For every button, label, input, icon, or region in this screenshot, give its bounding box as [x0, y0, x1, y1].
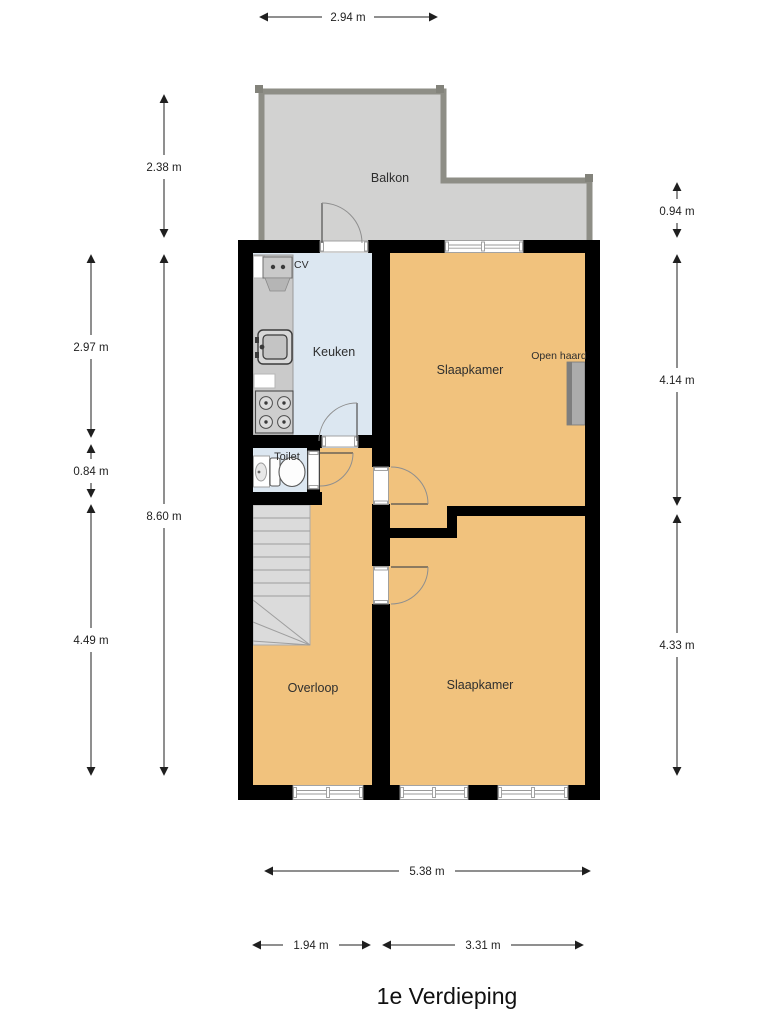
svg-text:4.33 m: 4.33 m — [659, 640, 694, 652]
dim-balcony-right-height: 0.94 m — [659, 183, 694, 237]
window-bottom-bedroom-left — [400, 786, 468, 800]
svg-text:4.49 m: 4.49 m — [73, 635, 108, 647]
svg-text:2.38 m: 2.38 m — [146, 162, 181, 174]
cv-label: CV — [294, 259, 309, 271]
dim-balcony-height: 2.38 m — [146, 95, 181, 237]
kitchen-sink — [255, 330, 292, 364]
dim-toilet-height: 0.84 m — [73, 445, 108, 497]
floor-title: 1e Verdieping — [377, 983, 518, 1009]
svg-text:3.31 m: 3.31 m — [465, 940, 500, 952]
toilet-label: Toilet — [274, 451, 300, 463]
svg-text:5.38 m: 5.38 m — [409, 866, 444, 878]
slaapkamer-2-label: Slaapkamer — [447, 678, 514, 692]
dim-bedroom1-height: 4.14 m — [659, 255, 694, 505]
dim-floor-height: 8.60 m — [146, 255, 181, 775]
window-top — [445, 241, 523, 253]
floor-plan: Balkon Keuken Slaapkamer Slaapkamer Over… — [0, 0, 768, 1024]
svg-text:0.84 m: 0.84 m — [73, 466, 108, 478]
svg-text:2.97 m: 2.97 m — [73, 342, 108, 354]
overloop-label: Overloop — [288, 681, 339, 695]
balcony-floor — [262, 92, 590, 247]
dim-bedroom-width: 3.31 m — [383, 940, 583, 952]
balcony-post — [255, 85, 263, 93]
window-bottom-bedroom-right — [498, 786, 568, 800]
dim-overloop-width: 1.94 m — [253, 940, 370, 952]
kitchen-counter — [253, 255, 293, 435]
kitchen-appliance — [254, 374, 275, 388]
room-balkon — [255, 85, 593, 246]
svg-text:4.14 m: 4.14 m — [659, 375, 694, 387]
keuken-label: Keuken — [313, 345, 355, 359]
svg-text:1.94 m: 1.94 m — [293, 940, 328, 952]
svg-text:0.94 m: 0.94 m — [659, 206, 694, 218]
balcony-post — [436, 85, 444, 93]
dim-bedroom2-height: 4.33 m — [659, 515, 694, 775]
staircase — [253, 505, 310, 645]
fireplace — [567, 362, 585, 425]
svg-text:8.60 m: 8.60 m — [146, 511, 181, 523]
dim-floor-width: 5.38 m — [265, 866, 590, 878]
dim-balcony-width: 2.94 m — [260, 12, 437, 24]
balcony-post — [585, 174, 593, 182]
slaapkamer-1-label: Slaapkamer — [437, 363, 504, 377]
open-haard-label: Open haard — [531, 350, 587, 362]
floor-plan-page: Balkon Keuken Slaapkamer Slaapkamer Over… — [0, 0, 768, 1024]
dim-kitchen-height: 2.97 m — [73, 255, 108, 437]
svg-text:2.94 m: 2.94 m — [330, 12, 365, 24]
dim-overloop-height: 4.49 m — [73, 505, 108, 775]
balkon-label: Balkon — [371, 171, 409, 185]
stove — [256, 391, 294, 433]
window-bottom-overloop — [293, 786, 363, 800]
